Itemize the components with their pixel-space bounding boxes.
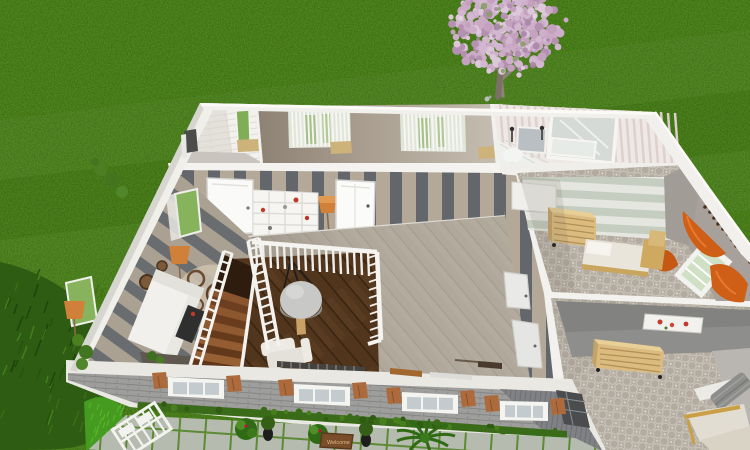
svg-text:Welcome: Welcome	[327, 440, 350, 446]
